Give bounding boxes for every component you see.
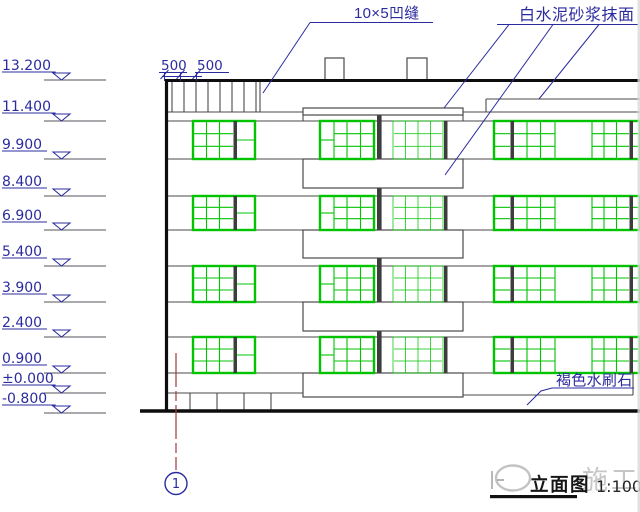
building-linework: 13.20011.4009.9008.4006.9005.4003.9002.4…: [2, 23, 640, 471]
elevation-triangle-icon: [53, 295, 70, 302]
dimension-value-right: 500: [197, 58, 223, 74]
brown-stone-annotation: 褐色水刷石: [556, 372, 633, 389]
elevation-triangle-icon: [53, 189, 70, 196]
elevation-triangle-icon: [53, 73, 70, 80]
axis-bubble: 1: [165, 473, 187, 495]
cad-drawing: 13.20011.4009.9008.4006.9005.4003.9002.4…: [0, 0, 640, 512]
elevation-triangle-icon: [53, 330, 70, 337]
elevation-triangle-icon: [53, 386, 70, 393]
elevation-drawing-canvas: 13.20011.4009.9008.4006.9005.4003.9002.4…: [0, 0, 640, 512]
elevation-triangle-icon: [53, 406, 70, 413]
elevation-triangle-icon: [53, 366, 70, 373]
title-block: 施工 立面图 1:100: [490, 465, 640, 498]
groove-annotation: 10×5凹缝: [354, 5, 420, 22]
elevation-triangle-icon: [53, 259, 70, 266]
dimension-value-left: 500: [161, 58, 187, 74]
axis-bubble-label: 1: [172, 477, 180, 492]
elevation-triangle-icon: [53, 152, 70, 159]
white-cement-annotation: 白水泥砂浆抹面: [519, 6, 635, 24]
watermark-stamp-icon: [496, 466, 530, 491]
title-underline: [490, 495, 577, 498]
drawing-title: 立面图: [530, 474, 590, 495]
drawing-scale: 1:100: [596, 477, 640, 496]
elevation-triangle-icon: [53, 114, 70, 121]
elevation-triangle-icon: [53, 223, 70, 230]
